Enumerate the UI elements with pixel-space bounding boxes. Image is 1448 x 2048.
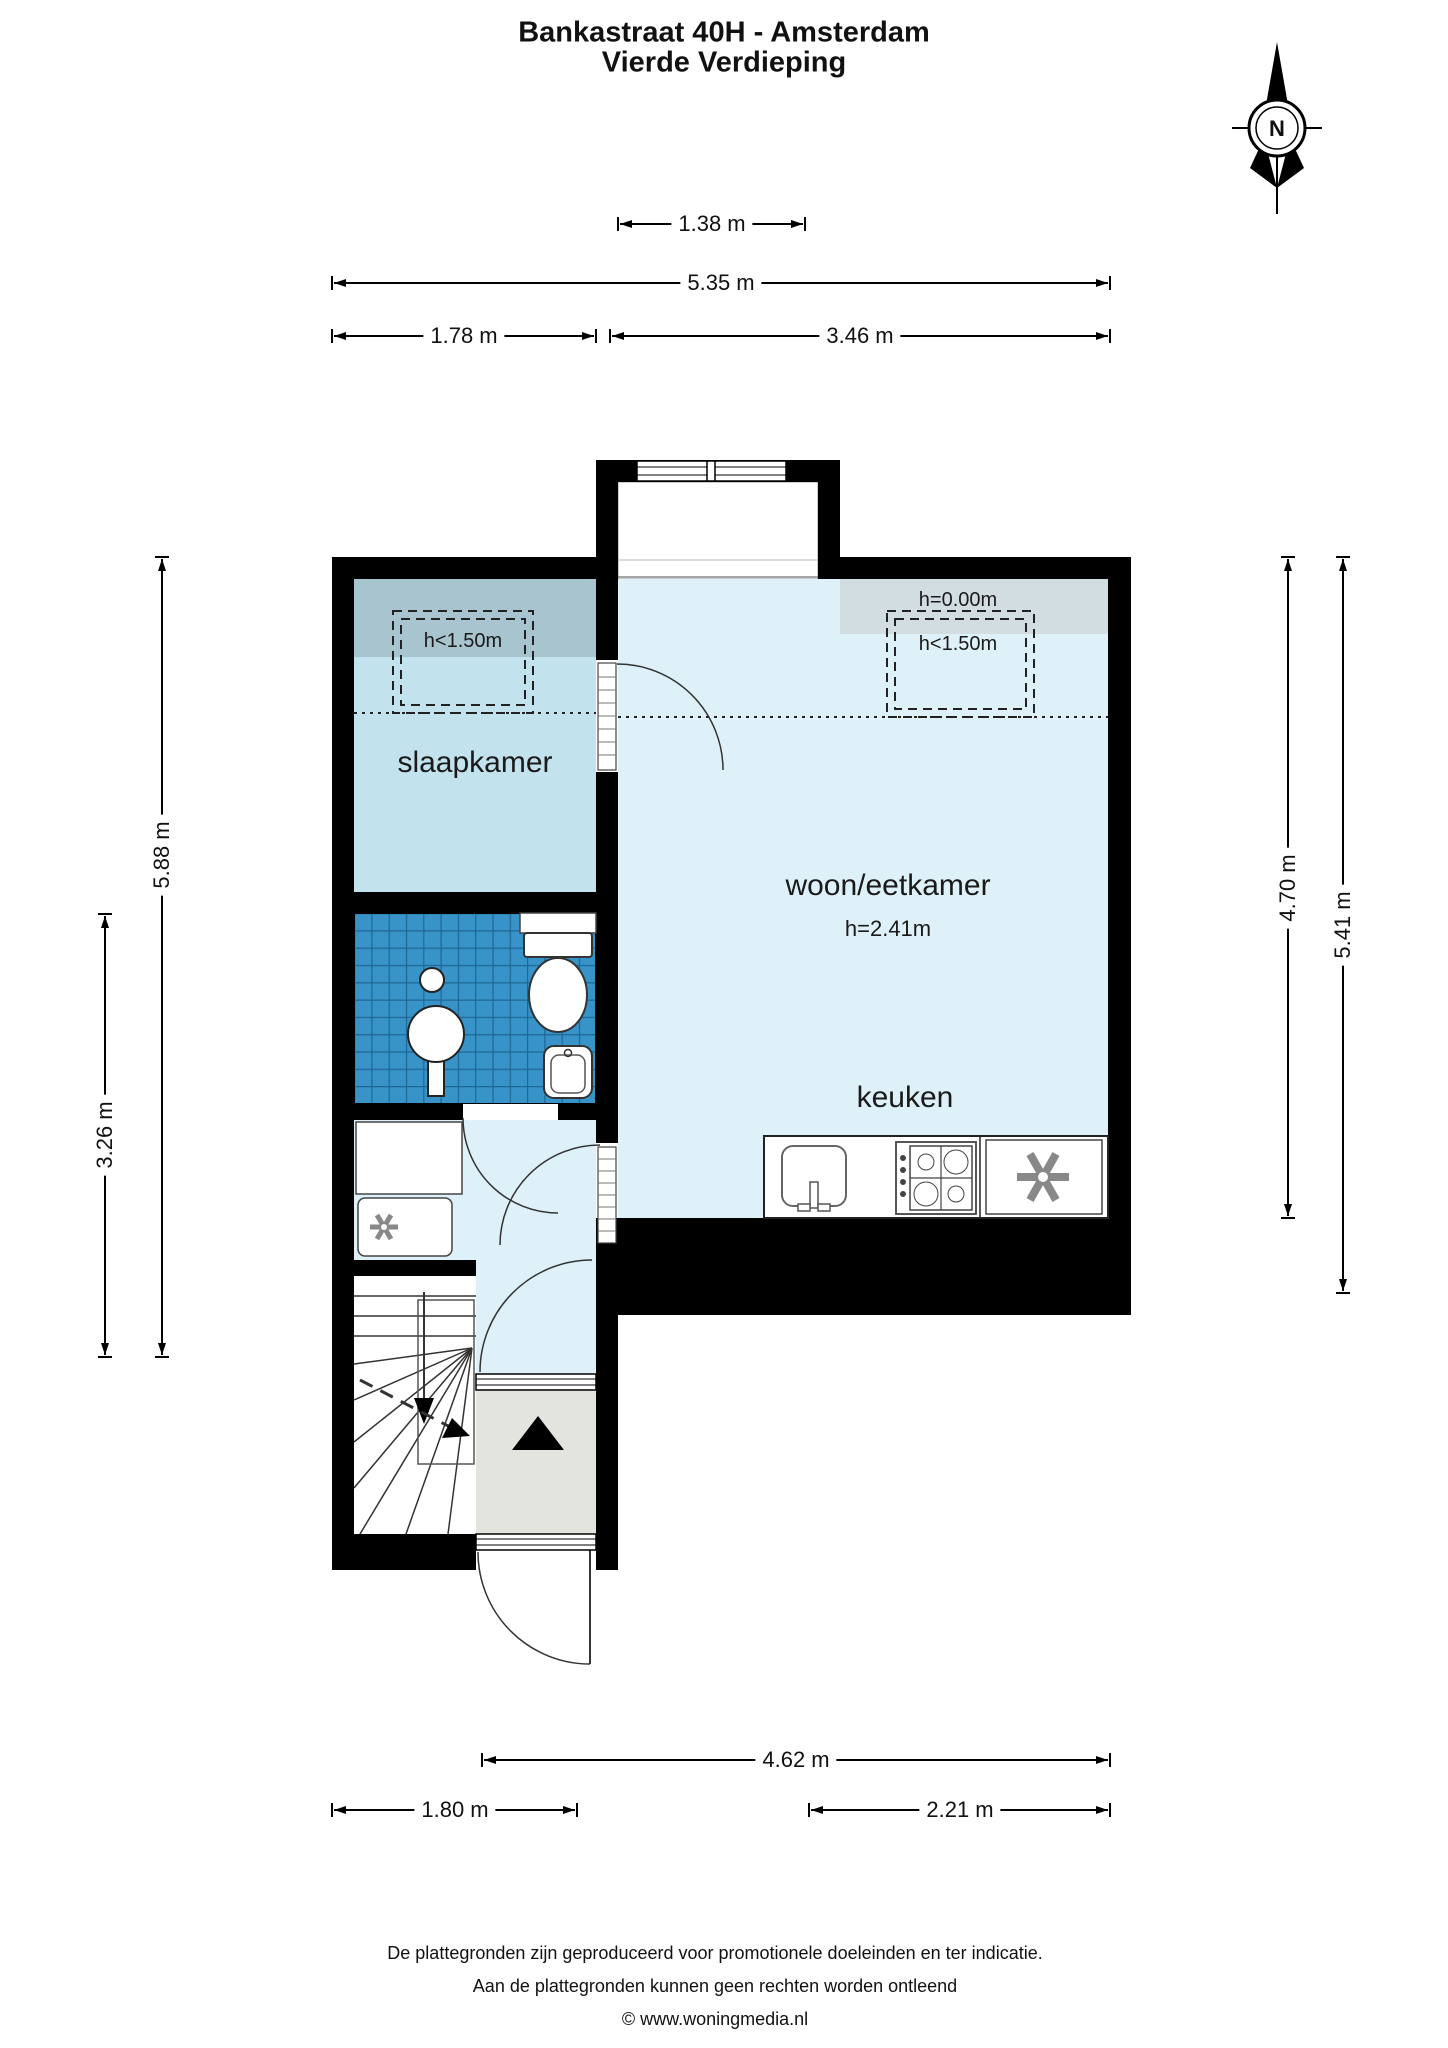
footer-copyright: © www.woningmedia.nl	[622, 2010, 808, 2028]
zone-label-living-low-ceiling: h<1.50m	[919, 634, 997, 654]
dim-bottom-total: 4.62 m	[755, 1749, 836, 1771]
zone-label-zero-height: h=0.00m	[919, 590, 997, 610]
dim-left-lower: 3.26 m	[94, 1094, 116, 1175]
footer-disclaimer-line2: Aan de plattegronden kunnen geen rechten…	[473, 1977, 957, 1995]
compass-north-label: N	[1269, 118, 1285, 140]
dim-right-total: 5.41 m	[1332, 884, 1354, 965]
dim-bottom-left: 1.80 m	[414, 1799, 495, 1821]
room-label-living: woon/eetkamer	[785, 871, 990, 901]
floorplan-canvas	[0, 0, 1448, 2048]
dim-top-nook: 1.38 m	[671, 213, 752, 235]
toilet-shelf	[520, 913, 596, 933]
dim-top-bedroom: 1.78 m	[423, 325, 504, 347]
page-subtitle: Vierde Verdieping	[602, 49, 846, 78]
front-door-swing-arc	[478, 1552, 590, 1664]
dim-top-total: 5.35 m	[680, 272, 761, 294]
bathroom-door-opening	[463, 1104, 558, 1120]
kitchen-counter	[764, 1136, 1108, 1218]
vent-unit-icon	[358, 1198, 452, 1256]
room-label-bedroom: slaapkamer	[397, 748, 552, 778]
room-label-kitchen: keuken	[857, 1083, 954, 1113]
closet	[356, 1122, 462, 1194]
toilet-icon	[524, 933, 592, 1032]
vestibule-floor	[476, 1390, 596, 1534]
floorplan-page: Bankastraat 40H - Amsterdam Vierde Verdi…	[0, 0, 1448, 2048]
footer-disclaimer-line1: De plattegronden zijn geproduceerd voor …	[387, 1944, 1042, 1962]
kitchen-sink-icon	[782, 1146, 846, 1211]
corner-basin-icon	[544, 1046, 592, 1098]
dim-right-living: 4.70 m	[1277, 847, 1299, 928]
stairwell-floor	[354, 1276, 476, 1534]
dim-left-total: 5.88 m	[151, 814, 173, 895]
extractor-fan-icon	[986, 1140, 1102, 1214]
hall-fixtures	[356, 1122, 462, 1256]
dim-top-living: 3.46 m	[819, 325, 900, 347]
zone-label-bedroom-low-ceiling: h<1.50m	[424, 631, 502, 651]
dormer-nook-floor	[618, 482, 818, 579]
dim-bottom-right: 2.21 m	[919, 1799, 1000, 1821]
page-title: Bankastraat 40H - Amsterdam	[518, 19, 930, 48]
living-ceiling-height-label: h=2.41m	[845, 918, 931, 940]
